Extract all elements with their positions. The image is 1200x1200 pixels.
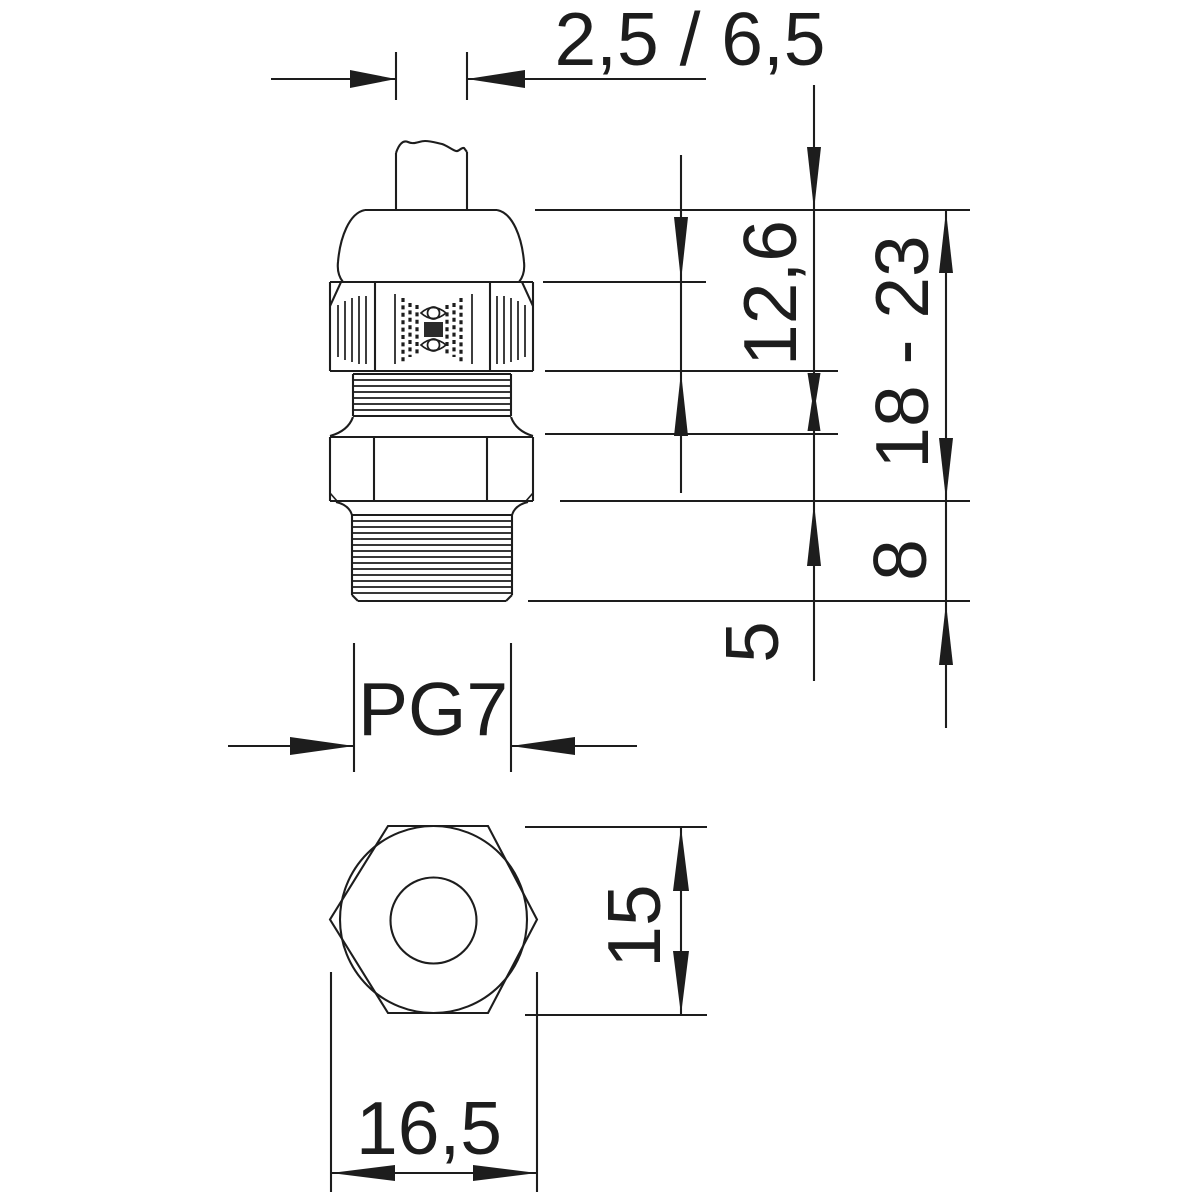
dimension-across-flats: 15 <box>525 827 707 1015</box>
dimension-thread-designation: PG7 <box>228 643 637 772</box>
logo-blob <box>424 322 443 337</box>
cable-hole-circle <box>391 878 477 964</box>
dim-label-right-mid: 8 <box>858 539 942 581</box>
dimension-overall-and-thread-length: 18 - 23 8 <box>858 210 953 728</box>
dim-label-right-upper: 12,6 <box>728 220 812 366</box>
dimension-top-cable-range: 2,5 / 6,5 <box>271 0 826 100</box>
dimension-bottom-width: 16,5 <box>331 972 537 1192</box>
hex-body <box>330 437 533 501</box>
ribbed-ring <box>353 374 511 416</box>
drawing-canvas: 2,5 / 6,5 12,6 5 18 - 23 8 <box>0 0 1200 1200</box>
arrowhead <box>807 147 821 210</box>
arrowhead <box>673 827 689 891</box>
dim-label-right-overall: 18 - 23 <box>860 235 944 469</box>
arrowhead-hourglass <box>808 373 821 431</box>
dimension-cap-height: 12,6 <box>674 155 812 493</box>
male-thread <box>352 515 512 601</box>
flare <box>330 417 533 436</box>
neck <box>336 502 528 515</box>
logo-marks <box>395 294 472 364</box>
arrowhead <box>939 603 953 665</box>
outer-circle <box>340 826 527 1013</box>
dome-cap <box>338 210 525 282</box>
side-view <box>330 141 533 601</box>
arrowhead <box>290 737 354 755</box>
cable-stub <box>396 141 467 210</box>
arrowhead <box>467 70 525 88</box>
dim-label-bottom-width: 16,5 <box>356 1086 502 1170</box>
arrowhead <box>511 737 575 755</box>
dim-label-thread: PG7 <box>358 667 508 751</box>
dim-label-top-width: 2,5 / 6,5 <box>554 0 825 81</box>
dim-label-across-flats: 15 <box>592 884 676 967</box>
hexagon-outline <box>330 826 537 1013</box>
bottom-view <box>330 826 537 1013</box>
arrowhead <box>674 217 688 281</box>
arrowhead <box>350 70 396 88</box>
dim-label-right-lower: 5 <box>710 621 794 663</box>
hex-cap-nut <box>330 282 533 371</box>
technical-drawing: 2,5 / 6,5 12,6 5 18 - 23 8 <box>0 0 1200 1200</box>
arrowhead <box>807 503 821 566</box>
dimension-body-stack: 5 <box>710 85 821 681</box>
arrowhead <box>674 372 688 436</box>
